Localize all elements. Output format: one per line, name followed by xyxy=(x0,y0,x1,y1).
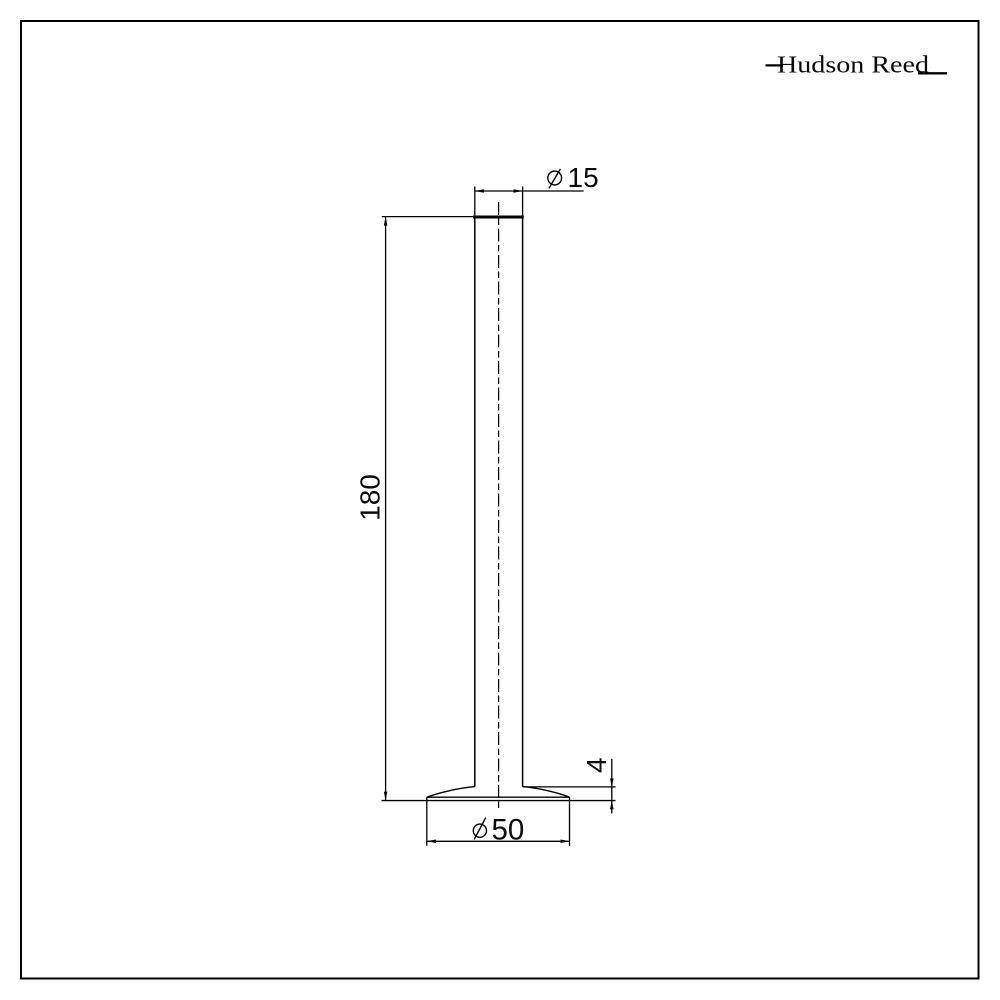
svg-text:50: 50 xyxy=(492,814,525,847)
svg-text:180: 180 xyxy=(354,474,385,521)
svg-text:Hudson Reed: Hudson Reed xyxy=(777,53,929,79)
svg-text:4: 4 xyxy=(581,757,612,773)
svg-text:15: 15 xyxy=(568,162,599,193)
